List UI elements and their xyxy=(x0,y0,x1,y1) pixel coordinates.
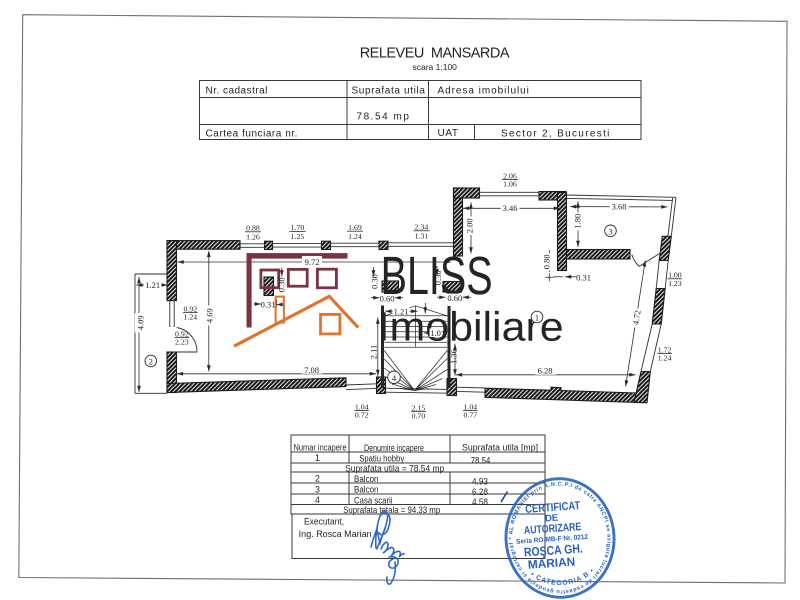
svg-text:0.77: 0.77 xyxy=(463,411,477,420)
svg-text:4.69: 4.69 xyxy=(205,308,215,323)
svg-text:0.88: 0.88 xyxy=(246,224,260,233)
svg-text:Casa scarii: Casa scarii xyxy=(354,495,393,505)
svg-text:4.09: 4.09 xyxy=(135,315,145,330)
svg-text:1.26: 1.26 xyxy=(246,232,260,241)
svg-text:0.30: 0.30 xyxy=(433,270,443,285)
svg-text:0.70: 0.70 xyxy=(412,412,426,421)
svg-text:2.23: 2.23 xyxy=(175,338,189,347)
svg-text:Suprafata utila [mp]: Suprafata utila [mp] xyxy=(462,442,538,452)
svg-text:1.21: 1.21 xyxy=(394,306,409,316)
svg-text:Numar incapere: Numar incapere xyxy=(294,442,347,452)
svg-text:Denumire incapere: Denumire incapere xyxy=(364,443,424,453)
svg-text:Executant,: Executant, xyxy=(304,517,344,527)
svg-text:Spatiu hobby: Spatiu hobby xyxy=(359,454,405,464)
svg-text:Suprafata totala = 94.33 mp: Suprafata totala = 94.33 mp xyxy=(343,505,440,515)
svg-text:78.54 mp: 78.54 mp xyxy=(357,112,410,123)
svg-text:1.23: 1.23 xyxy=(668,279,682,288)
svg-text:1.06: 1.06 xyxy=(503,180,517,189)
svg-text:Cartea funciara nr.: Cartea funciara nr. xyxy=(206,129,299,140)
svg-text:1.24: 1.24 xyxy=(658,354,672,363)
svg-text:UAT: UAT xyxy=(438,128,459,139)
svg-text:Sector 2, Bucuresti: Sector 2, Bucuresti xyxy=(501,129,610,140)
svg-text:4.93: 4.93 xyxy=(472,476,488,486)
svg-text:2.34: 2.34 xyxy=(415,223,429,232)
svg-text:78.54: 78.54 xyxy=(471,456,491,466)
svg-text:3: 3 xyxy=(315,484,320,494)
svg-text:Nr. cadastral: Nr. cadastral xyxy=(206,86,269,97)
svg-text:1.25: 1.25 xyxy=(291,232,305,241)
svg-text:2: 2 xyxy=(149,357,153,367)
svg-text:9.72: 9.72 xyxy=(305,257,320,267)
svg-text:0.60: 0.60 xyxy=(380,293,395,303)
svg-text:4.58: 4.58 xyxy=(472,497,488,507)
svg-text:6.28: 6.28 xyxy=(538,366,553,376)
svg-text:2.11: 2.11 xyxy=(369,345,379,360)
svg-text:0.30: 0.30 xyxy=(370,274,380,289)
svg-text:1.80: 1.80 xyxy=(573,214,583,229)
svg-text:0.31: 0.31 xyxy=(576,272,591,282)
svg-text:3: 3 xyxy=(608,226,612,236)
svg-text:0.30: 0.30 xyxy=(277,277,287,292)
svg-text:0.31: 0.31 xyxy=(261,300,276,310)
svg-text:0.72: 0.72 xyxy=(355,411,369,420)
svg-text:Balcon: Balcon xyxy=(354,474,379,484)
svg-text:1.24: 1.24 xyxy=(183,313,197,322)
svg-text:Adresa imobilului: Adresa imobilului xyxy=(438,86,530,97)
svg-text:Ing. Rosca Marian: Ing. Rosca Marian xyxy=(299,529,372,539)
svg-text:6.28: 6.28 xyxy=(472,487,488,497)
svg-text:1.21: 1.21 xyxy=(145,280,160,290)
svg-text:1.36: 1.36 xyxy=(449,349,459,364)
svg-text:7.08: 7.08 xyxy=(304,365,319,375)
svg-text:3.68: 3.68 xyxy=(612,202,627,212)
svg-text:2.00: 2.00 xyxy=(464,218,474,233)
svg-text:2: 2 xyxy=(315,474,320,484)
svg-text:1.70: 1.70 xyxy=(291,223,305,232)
svg-text:1.24: 1.24 xyxy=(348,232,362,241)
svg-text:3.46: 3.46 xyxy=(503,203,518,213)
svg-text:1.69: 1.69 xyxy=(348,223,362,232)
svg-text:4: 4 xyxy=(315,495,320,505)
svg-text:1: 1 xyxy=(535,313,539,323)
svg-text:1.31: 1.31 xyxy=(415,231,429,240)
svg-text:Balcon: Balcon xyxy=(354,485,379,495)
svg-text:Suprafata utila = 78.54 mp: Suprafata utila = 78.54 mp xyxy=(345,464,444,474)
svg-text:scara 1:100: scara 1:100 xyxy=(412,62,457,72)
svg-text:0.60: 0.60 xyxy=(447,293,462,303)
svg-text:1.0: 1.0 xyxy=(430,328,441,338)
svg-text:Suprafata utila: Suprafata utila xyxy=(352,86,426,97)
svg-text:1: 1 xyxy=(315,453,320,463)
svg-text:RELEVEU MANSARDA: RELEVEU MANSARDA xyxy=(360,46,510,62)
svg-text:0.80: 0.80 xyxy=(542,254,552,269)
